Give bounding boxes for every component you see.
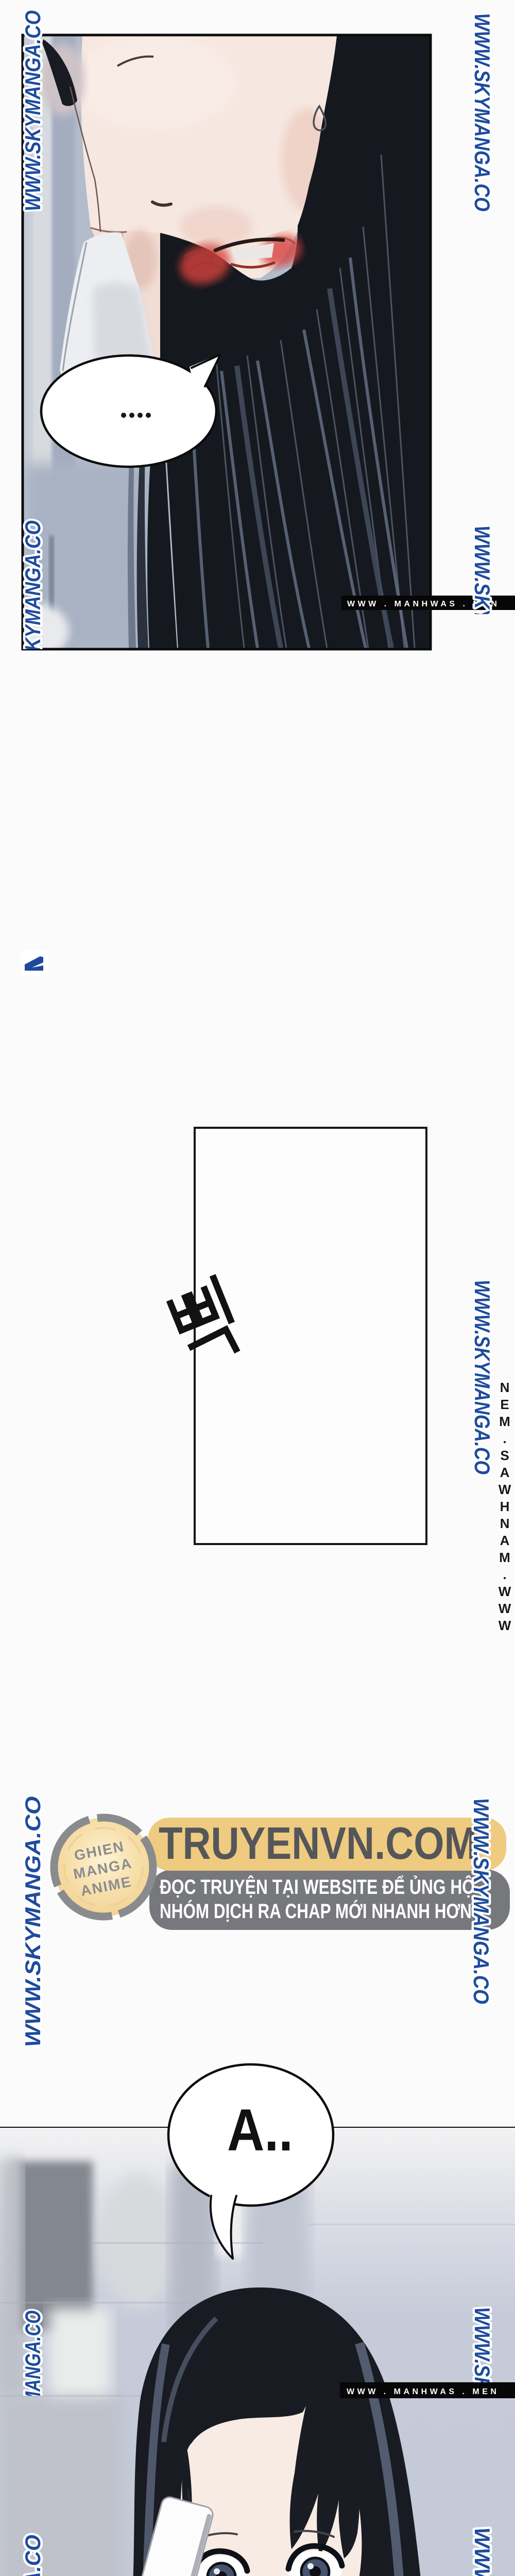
svg-text:WWW.SKYMANGA.CO: WWW.SKYMANGA.CO [21, 2535, 45, 2576]
svg-text:NHÓM DỊCH RA CHAP MỚI NHANH HƠ: NHÓM DỊCH RA CHAP MỚI NHANH HƠN [160, 1899, 472, 1923]
svg-text:WWW.SKYMANGA.CO: WWW.SKYMANGA.CO [469, 1798, 493, 2004]
svg-text:TRUYENVN.COM: TRUYENVN.COM [159, 1818, 477, 1869]
svg-text:A..: A.. [227, 2097, 293, 2163]
svg-text:NEM.SAWHNAM.WWW: NEM.SAWHNAM.WWW [499, 1380, 511, 1633]
svg-text:WWW.SKYMANGA.CO: WWW.SKYMANGA.CO [21, 1797, 45, 2047]
svg-text:WWW.SKYMANGA.CO: WWW.SKYMANGA.CO [21, 10, 45, 211]
svg-text:WWW.SKYMANGA.CO: WWW.SKYMANGA.CO [470, 13, 494, 212]
svg-text:WWW.SKYMANGA.CO: WWW.SKYMANGA.CO [470, 1280, 494, 1475]
svg-text:WWW.SKYMANGA.CO: WWW.SKYMANGA.CO [470, 2528, 494, 2576]
svg-text:ĐỌC TRUYỆN TẠI WEBSITE ĐỂ ỦNG: ĐỌC TRUYỆN TẠI WEBSITE ĐỂ ỦNG HỘ [160, 1874, 475, 1899]
svg-text:WWW . MANHWAS . MEN: WWW . MANHWAS . MEN [347, 2387, 499, 2396]
